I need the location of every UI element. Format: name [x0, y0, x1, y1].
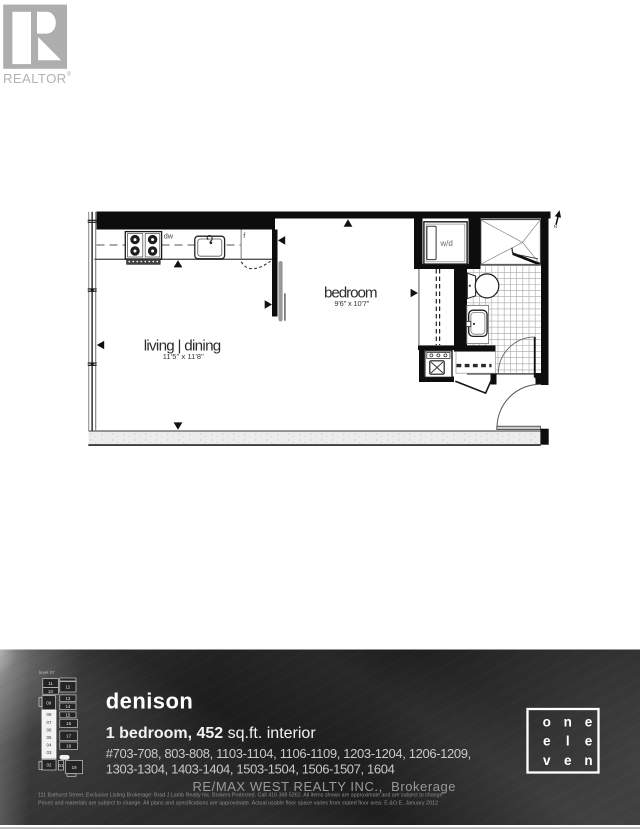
- svg-text:01: 01: [58, 763, 63, 768]
- svg-text:e: e: [543, 733, 551, 748]
- svg-text:f: f: [243, 231, 245, 240]
- svg-text:denison: denison: [106, 689, 193, 714]
- svg-text:05: 05: [47, 735, 52, 740]
- svg-text:REALTOR: REALTOR: [3, 71, 67, 86]
- svg-text:06: 06: [47, 727, 52, 732]
- svg-text:n: n: [584, 753, 592, 768]
- svg-text:v: v: [543, 753, 551, 768]
- svg-text:1 bedroom, 452 sq.ft. interior: 1 bedroom, 452 sq.ft. interior: [106, 725, 317, 742]
- svg-text:11'5" x 11'8": 11'5" x 11'8": [163, 352, 204, 361]
- svg-text:17: 17: [66, 734, 71, 739]
- svg-text:e: e: [585, 714, 593, 729]
- svg-text:dw: dw: [164, 232, 174, 241]
- svg-text:10: 10: [48, 689, 53, 694]
- svg-text:e: e: [564, 753, 572, 768]
- svg-text:#703-708, 803-808, 1103-1104,: #703-708, 803-808, 1103-1104, 1106-1109,…: [106, 746, 472, 761]
- svg-text:09: 09: [46, 701, 51, 706]
- svg-text:w/d: w/d: [439, 239, 452, 248]
- svg-text:19: 19: [72, 765, 77, 770]
- svg-text:13: 13: [65, 696, 70, 701]
- svg-text:Prices and materials are subje: Prices and materials are subject to chan…: [38, 801, 438, 807]
- svg-text:e: e: [585, 733, 593, 748]
- svg-text:04: 04: [47, 743, 52, 748]
- svg-text:o: o: [543, 714, 551, 729]
- svg-text:n: n: [564, 714, 572, 729]
- svg-text:08: 08: [47, 712, 52, 717]
- svg-text:02: 02: [47, 763, 52, 768]
- svg-text:03: 03: [47, 750, 52, 755]
- svg-text:18: 18: [66, 744, 71, 749]
- svg-text:N: N: [554, 224, 557, 229]
- svg-text:16: 16: [66, 721, 71, 726]
- svg-text:14: 14: [65, 704, 70, 709]
- svg-text:111 Bathurst Street. Exclusive: 111 Bathurst Street. Exclusive Listing B…: [38, 792, 444, 798]
- svg-text:®: ®: [67, 71, 72, 78]
- svg-text:9'6" x 10'7": 9'6" x 10'7": [334, 299, 369, 308]
- svg-text:15: 15: [65, 713, 70, 718]
- svg-text:l: l: [566, 733, 570, 748]
- svg-text:11: 11: [48, 681, 53, 686]
- svg-text:level 07: level 07: [39, 670, 55, 675]
- svg-text:07: 07: [47, 720, 52, 725]
- svg-text:1303-1304, 1403-1404, 1503-150: 1303-1304, 1403-1404, 1503-1504, 1506-15…: [106, 761, 395, 776]
- svg-text:12: 12: [65, 685, 70, 690]
